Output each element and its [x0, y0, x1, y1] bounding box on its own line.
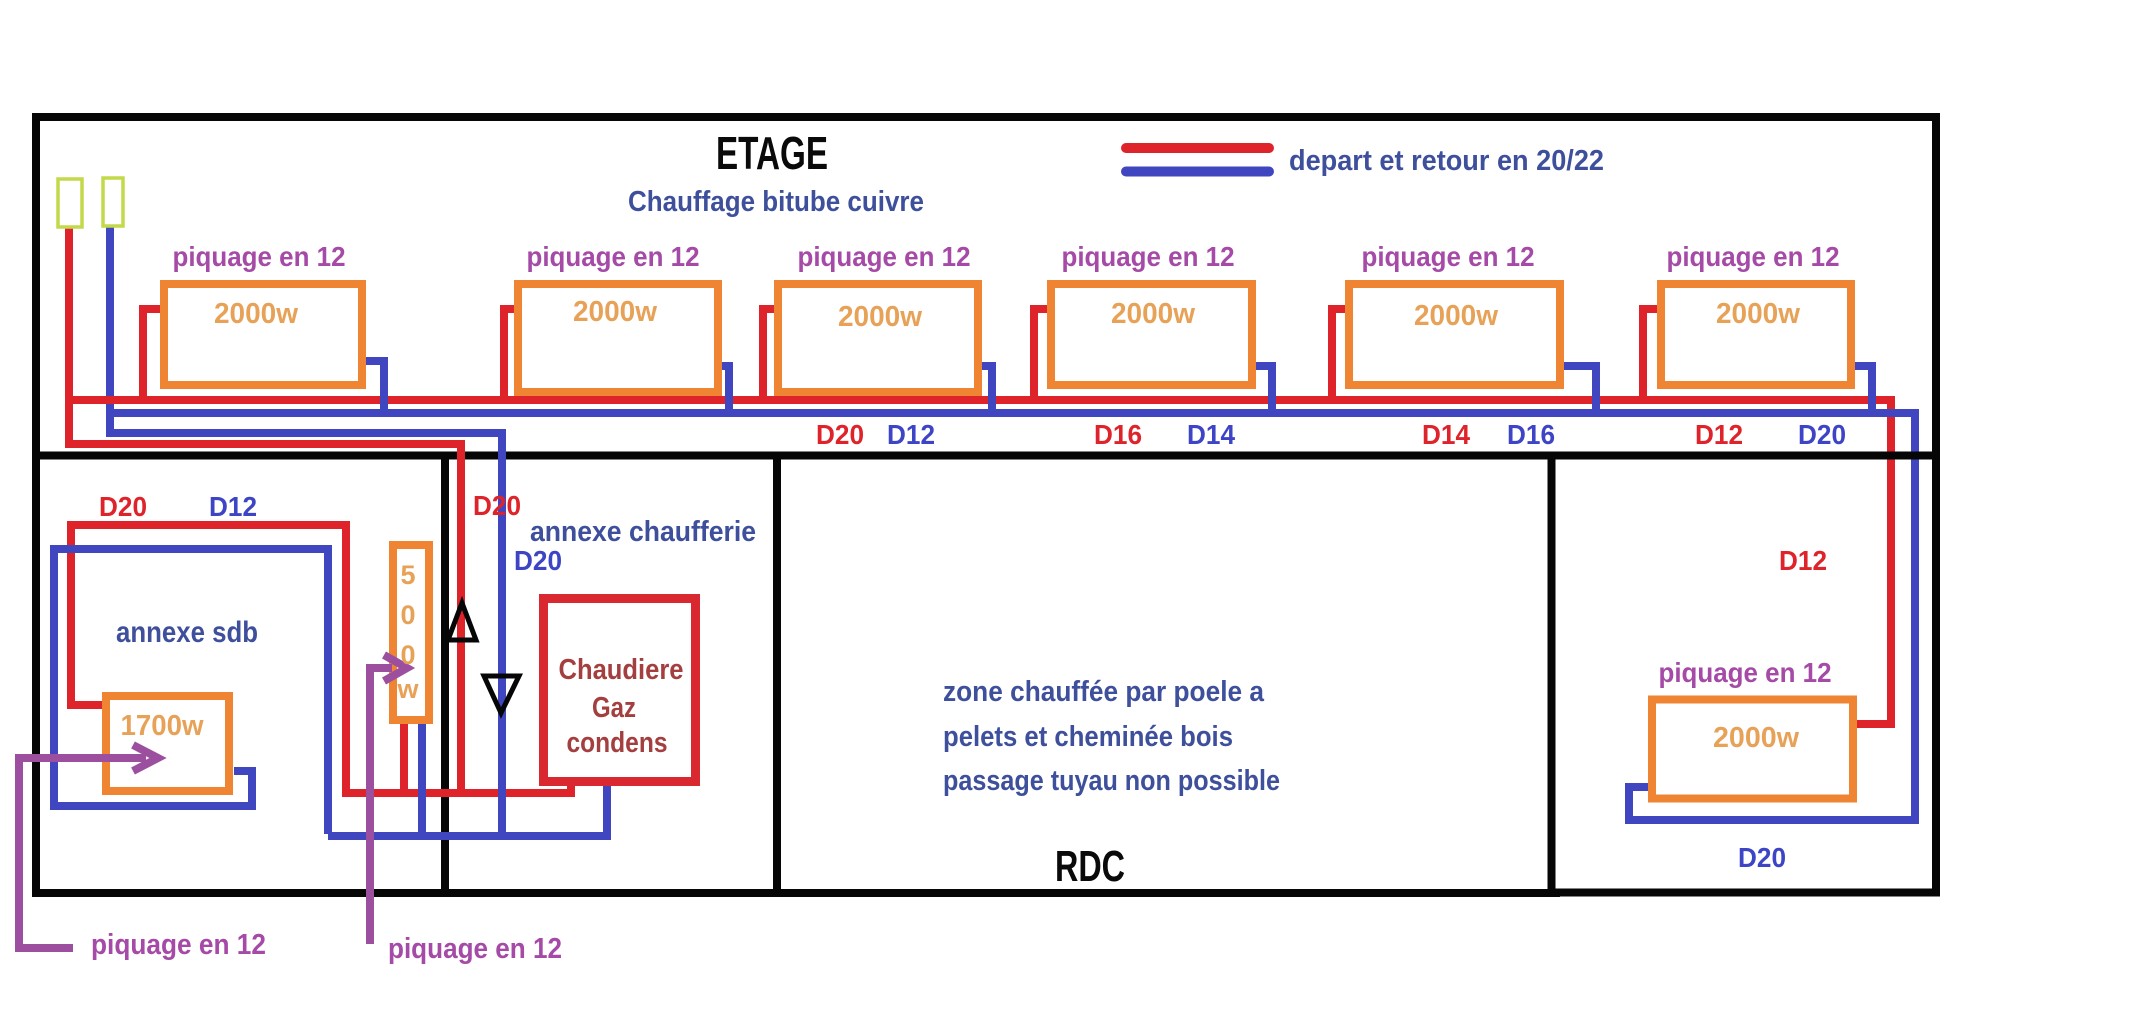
svg-text:piquage en 12: piquage en 12	[798, 241, 971, 272]
svg-text:D16: D16	[1507, 419, 1555, 450]
svg-text:2000w: 2000w	[1414, 300, 1498, 332]
svg-text:piquage en 12: piquage en 12	[1667, 241, 1840, 272]
svg-text:Chauffage bitube cuivre: Chauffage bitube cuivre	[628, 186, 924, 218]
svg-text:2000w: 2000w	[573, 296, 657, 328]
svg-text:D20: D20	[816, 419, 864, 450]
svg-text:RDC: RDC	[1055, 842, 1125, 891]
svg-text:Gaz: Gaz	[592, 692, 636, 724]
svg-text:annexe chaufferie: annexe chaufferie	[530, 516, 756, 548]
svg-text:0: 0	[400, 640, 415, 670]
svg-text:pelets et cheminée bois: pelets et cheminée bois	[943, 721, 1233, 753]
svg-text:depart et retour en 20/22: depart et retour en 20/22	[1289, 145, 1604, 177]
svg-text:2000w: 2000w	[838, 301, 922, 333]
svg-text:2000w: 2000w	[214, 298, 298, 330]
svg-text:annexe sdb: annexe sdb	[116, 616, 258, 649]
svg-text:D20: D20	[99, 491, 147, 522]
svg-text:Chaudiere: Chaudiere	[559, 654, 684, 686]
svg-text:2000w: 2000w	[1716, 298, 1800, 330]
svg-text:D20: D20	[1738, 842, 1786, 873]
svg-text:zone chauffée par poele a: zone chauffée par poele a	[943, 676, 1265, 708]
svg-text:2000w: 2000w	[1111, 298, 1195, 330]
svg-text:piquage en 12: piquage en 12	[1659, 657, 1832, 688]
svg-text:5: 5	[400, 560, 415, 590]
svg-text:D20: D20	[1798, 419, 1846, 450]
svg-text:piquage en 12: piquage en 12	[173, 241, 346, 272]
svg-text:D20: D20	[514, 545, 562, 576]
svg-text:D12: D12	[209, 491, 257, 522]
svg-text:D16: D16	[1094, 419, 1142, 450]
svg-text:D20: D20	[473, 490, 521, 521]
svg-text:piquage en 12: piquage en 12	[1062, 241, 1235, 272]
svg-text:piquage en 12: piquage en 12	[1362, 241, 1535, 272]
svg-text:w: w	[396, 674, 419, 704]
svg-text:D12: D12	[887, 419, 935, 450]
svg-text:piquage en 12: piquage en 12	[527, 241, 700, 272]
svg-text:ETAGE: ETAGE	[716, 127, 828, 179]
svg-text:2000w: 2000w	[1713, 722, 1799, 754]
svg-text:piquage en 12: piquage en 12	[91, 929, 266, 961]
svg-text:passage tuyau non possible: passage tuyau non possible	[943, 765, 1280, 797]
svg-text:condens: condens	[567, 727, 668, 759]
svg-text:D14: D14	[1187, 419, 1235, 450]
svg-text:D12: D12	[1779, 545, 1827, 576]
svg-text:0: 0	[400, 600, 415, 630]
svg-text:1700w: 1700w	[121, 710, 204, 742]
svg-text:piquage en 12: piquage en 12	[388, 933, 562, 965]
svg-text:D14: D14	[1422, 419, 1470, 450]
svg-text:D12: D12	[1695, 419, 1743, 450]
